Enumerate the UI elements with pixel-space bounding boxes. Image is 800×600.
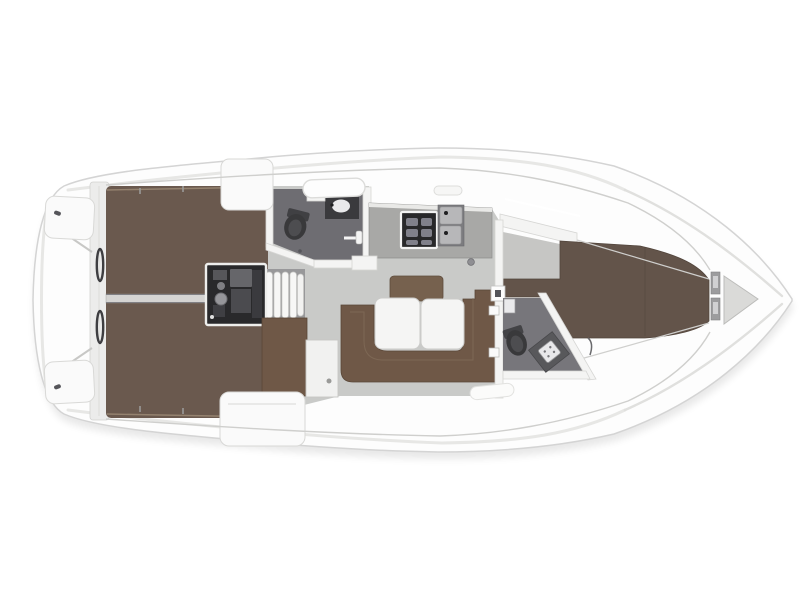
deck-hatch bbox=[303, 178, 366, 198]
galley-sink-1 bbox=[440, 207, 462, 224]
mast-step bbox=[468, 259, 475, 266]
fwd-head-sink bbox=[504, 299, 515, 313]
nav-seat bbox=[262, 318, 307, 396]
helm-seat-starboard bbox=[44, 360, 95, 405]
aft-head-sink bbox=[332, 200, 350, 213]
galley-cabinet bbox=[352, 256, 377, 270]
door-hinge-1 bbox=[489, 306, 499, 315]
boat-floorplan-canvas bbox=[0, 0, 800, 600]
door-hinge-2 bbox=[489, 348, 499, 357]
helm-seat-port bbox=[44, 196, 95, 241]
chart-table bbox=[306, 340, 338, 397]
sink-faucet-2 bbox=[444, 231, 448, 235]
aft-cabin-divider bbox=[106, 294, 208, 303]
deck-cleat bbox=[434, 186, 462, 195]
sofa-backrest bbox=[390, 276, 443, 301]
shower-drain bbox=[298, 249, 302, 253]
door-latch bbox=[495, 290, 501, 297]
sink-faucet-1 bbox=[444, 211, 448, 215]
cockpit-locker-starboard bbox=[220, 392, 305, 446]
aft-head-faucet bbox=[330, 203, 333, 206]
engine-detail bbox=[210, 269, 262, 319]
companionway bbox=[206, 264, 305, 325]
saloon-table-leaf-left bbox=[375, 298, 420, 349]
galley-sink-2 bbox=[440, 226, 461, 244]
companionway-steps bbox=[266, 272, 304, 318]
floorplan-svg bbox=[0, 0, 800, 600]
chart-table-knob bbox=[327, 379, 332, 384]
saloon-table-leaf-right bbox=[421, 299, 464, 349]
cockpit-locker-port bbox=[221, 159, 273, 210]
